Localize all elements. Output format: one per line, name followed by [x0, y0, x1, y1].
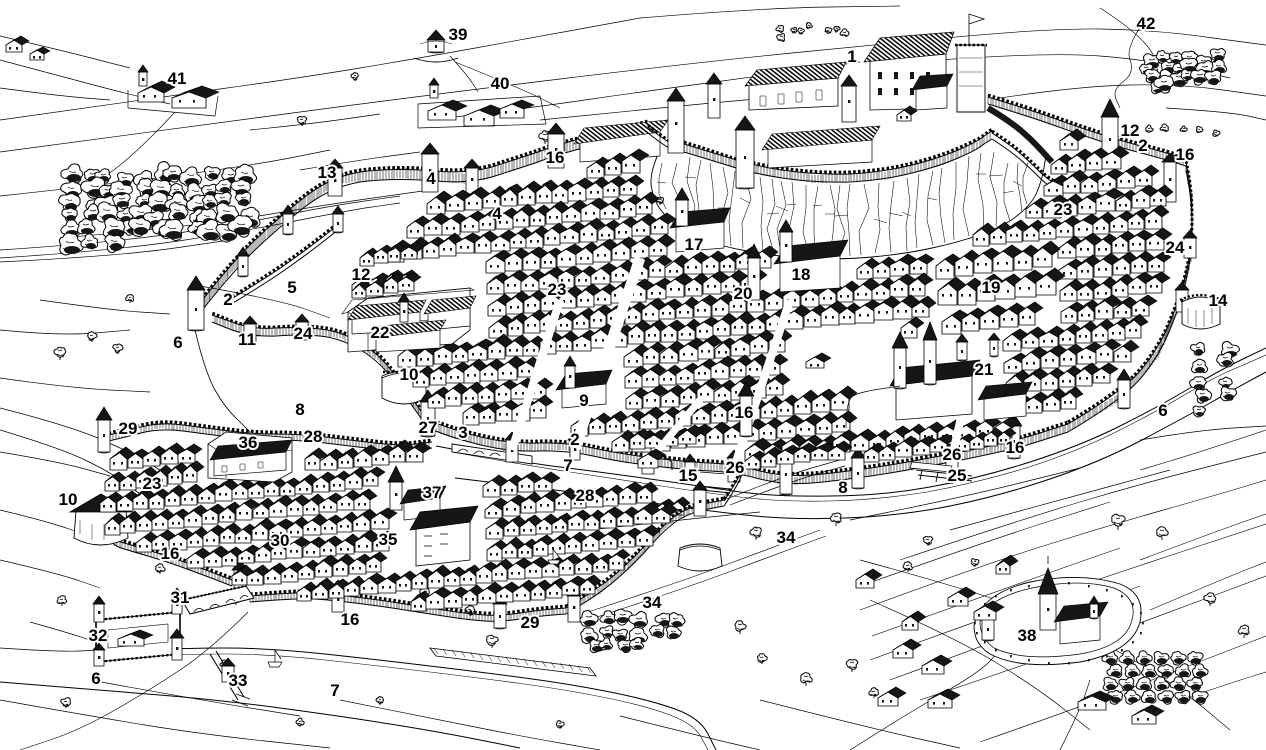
svg-text:12: 12 [352, 265, 371, 284]
svg-text:19: 19 [982, 278, 1001, 297]
svg-text:42: 42 [1137, 14, 1156, 33]
svg-text:16: 16 [1006, 438, 1025, 457]
svg-text:16: 16 [341, 610, 360, 629]
svg-text:34: 34 [777, 528, 796, 547]
svg-text:35: 35 [379, 530, 398, 549]
svg-text:39: 39 [449, 25, 468, 44]
svg-text:37: 37 [423, 483, 442, 502]
svg-text:25: 25 [948, 466, 967, 485]
svg-text:10: 10 [59, 490, 78, 509]
svg-text:9: 9 [579, 391, 588, 410]
svg-text:10: 10 [400, 365, 419, 384]
svg-text:23: 23 [1054, 200, 1073, 219]
svg-text:33: 33 [229, 671, 248, 690]
svg-text:17: 17 [685, 235, 704, 254]
svg-text:40: 40 [491, 74, 510, 93]
svg-text:1: 1 [847, 47, 856, 66]
svg-text:29: 29 [521, 613, 540, 632]
svg-text:6: 6 [173, 333, 182, 352]
svg-text:13: 13 [318, 163, 337, 182]
svg-text:6: 6 [1158, 401, 1167, 420]
svg-text:16: 16 [1176, 145, 1195, 164]
svg-text:22: 22 [371, 323, 390, 342]
svg-text:16: 16 [546, 148, 565, 167]
svg-text:27: 27 [419, 418, 438, 437]
svg-text:34: 34 [643, 593, 662, 612]
svg-text:6: 6 [91, 669, 100, 688]
svg-text:2: 2 [570, 430, 579, 449]
svg-text:7: 7 [330, 681, 339, 700]
svg-text:5: 5 [287, 278, 296, 297]
svg-text:31: 31 [171, 588, 190, 607]
svg-text:2: 2 [1138, 136, 1147, 155]
svg-text:3: 3 [458, 423, 467, 442]
svg-text:14: 14 [1209, 291, 1228, 310]
svg-text:23: 23 [143, 474, 162, 493]
svg-text:18: 18 [792, 265, 811, 284]
svg-text:36: 36 [239, 433, 258, 452]
svg-text:28: 28 [304, 427, 323, 446]
svg-text:29: 29 [119, 419, 138, 438]
svg-text:24: 24 [294, 324, 313, 343]
svg-text:11: 11 [238, 330, 256, 349]
svg-text:15: 15 [679, 466, 698, 485]
svg-text:7: 7 [563, 456, 572, 475]
svg-text:4: 4 [426, 169, 436, 188]
svg-text:30: 30 [271, 531, 290, 550]
svg-text:8: 8 [295, 400, 304, 419]
svg-text:26: 26 [943, 445, 962, 464]
svg-text:16: 16 [735, 403, 754, 422]
svg-text:26: 26 [726, 458, 745, 477]
svg-text:24: 24 [1166, 238, 1185, 257]
svg-text:2: 2 [223, 290, 232, 309]
svg-text:8: 8 [838, 478, 847, 497]
svg-text:38: 38 [1018, 626, 1037, 645]
svg-text:12: 12 [1121, 121, 1140, 140]
svg-text:4: 4 [492, 204, 502, 223]
svg-text:20: 20 [734, 284, 753, 303]
svg-text:28: 28 [576, 486, 595, 505]
svg-text:16: 16 [161, 544, 180, 563]
svg-text:41: 41 [168, 69, 187, 88]
svg-text:23: 23 [548, 280, 567, 299]
svg-text:32: 32 [89, 626, 108, 645]
svg-text:21: 21 [975, 360, 994, 379]
